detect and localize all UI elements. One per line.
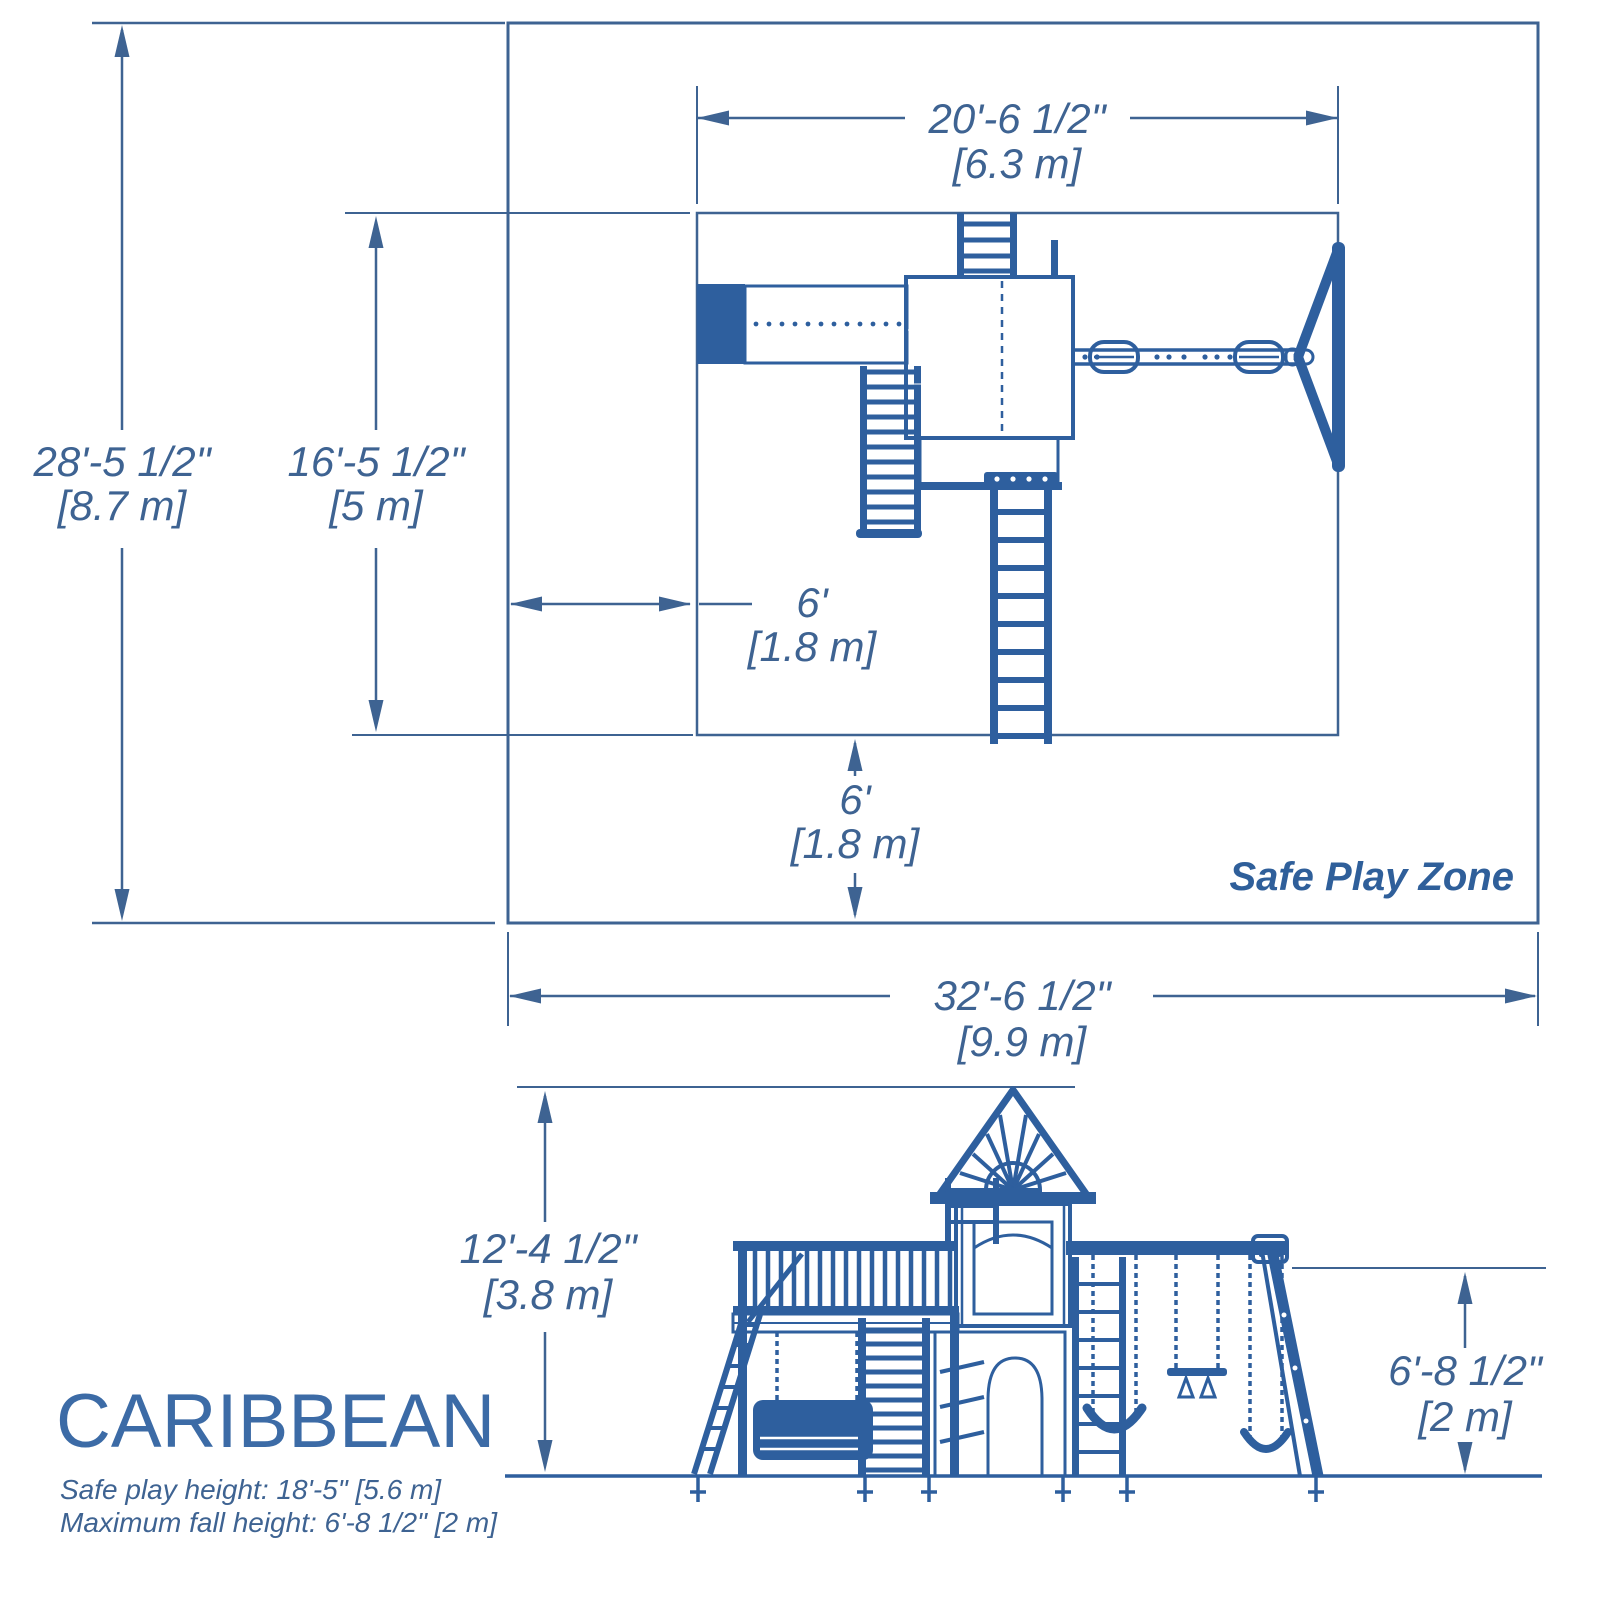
swing-beam-plan: [1073, 342, 1313, 372]
blueprint-canvas: 20'-6 1/2" [6.3 m] 28'-5 1/2" [8.7 m] 16…: [0, 0, 1600, 1600]
dim-beam-height-m: [2 m]: [1417, 1393, 1513, 1440]
dim-zone-depth-m: [8.7 m]: [57, 482, 188, 529]
note-safe-play-height: Safe play height: 18'-5" [5.6 m]: [60, 1474, 442, 1505]
ladder-plan: [984, 472, 1058, 744]
dim-zone-width-ft: 32'-6 1/2": [933, 972, 1112, 1019]
dim-zone-depth: 28'-5 1/2" [8.7 m]: [32, 25, 212, 921]
dim-zone-width: 32'-6 1/2" [9.9 m]: [509, 972, 1537, 1065]
stairs-plan: [856, 366, 922, 538]
dim-unit-width-m: [6.3 m]: [952, 140, 1083, 187]
note-maximum-fall-height: Maximum fall height: 6'-8 1/2" [2 m]: [60, 1507, 498, 1538]
dim-overall-height-ft: 12'-4 1/2": [459, 1225, 638, 1272]
title-block: CARIBBEAN Safe play height: 18'-5" [5.6 …: [56, 1379, 498, 1538]
slide-exit-plan: [697, 284, 745, 364]
upper-climber-elevation: [945, 1178, 999, 1244]
dim-side-clearance-m: [1.8 m]: [747, 623, 878, 670]
elevation-view: 12'-4 1/2" [3.8 m] 6'-8 1/2" [2 m]: [459, 1087, 1546, 1502]
dim-overall-height-m: [3.8 m]: [483, 1271, 614, 1318]
playset-elevation-drawing: [505, 1090, 1542, 1502]
dim-unit-width-ft: 20'-6 1/2": [927, 95, 1107, 142]
dim-unit-depth-ft: 16'-5 1/2": [287, 438, 466, 485]
blueprint-page: 20'-6 1/2" [6.3 m] 28'-5 1/2" [8.7 m] 16…: [0, 0, 1600, 1600]
tower-ladder-elevation: [1072, 1257, 1126, 1476]
dim-beam-height-ft: 6'-8 1/2": [1388, 1347, 1544, 1394]
dim-front-clearance-m: [1.8 m]: [790, 820, 921, 867]
dim-unit-depth-m: [5 m]: [328, 482, 424, 529]
ground-stakes: [690, 1476, 1324, 1502]
swing-aframe-plan: [1294, 242, 1346, 472]
swing-set-elevation: [1066, 1236, 1318, 1476]
dim-front-clearance-ft: 6': [839, 776, 872, 823]
tower-elevation: [930, 1090, 1096, 1326]
dim-unit-width: 20'-6 1/2" [6.3 m]: [697, 95, 1338, 187]
dim-unit-depth: 16'-5 1/2" [5 m]: [287, 216, 466, 732]
sunburst-gable: [960, 1115, 1066, 1190]
product-title: CARIBBEAN: [56, 1379, 495, 1464]
dim-zone-width-m: [9.9 m]: [957, 1018, 1088, 1065]
dim-front-clearance: 6' [1.8 m]: [790, 739, 921, 919]
dim-side-clearance-ft: 6': [796, 579, 829, 626]
plan-view: 20'-6 1/2" [6.3 m] 28'-5 1/2" [8.7 m] 16…: [32, 23, 1538, 1065]
dim-zone-depth-ft: 28'-5 1/2": [32, 438, 212, 485]
glider-swing-elevation: [753, 1332, 873, 1460]
climber-plan: [957, 213, 1017, 278]
dim-side-clearance: 6' [1.8 m]: [510, 579, 878, 670]
dim-beam-height: 6'-8 1/2" [2 m]: [1388, 1272, 1544, 1474]
safe-play-zone-label: Safe Play Zone: [1229, 855, 1514, 899]
flag-pole-plan: [1051, 240, 1058, 278]
roof-plan: [906, 277, 1073, 438]
